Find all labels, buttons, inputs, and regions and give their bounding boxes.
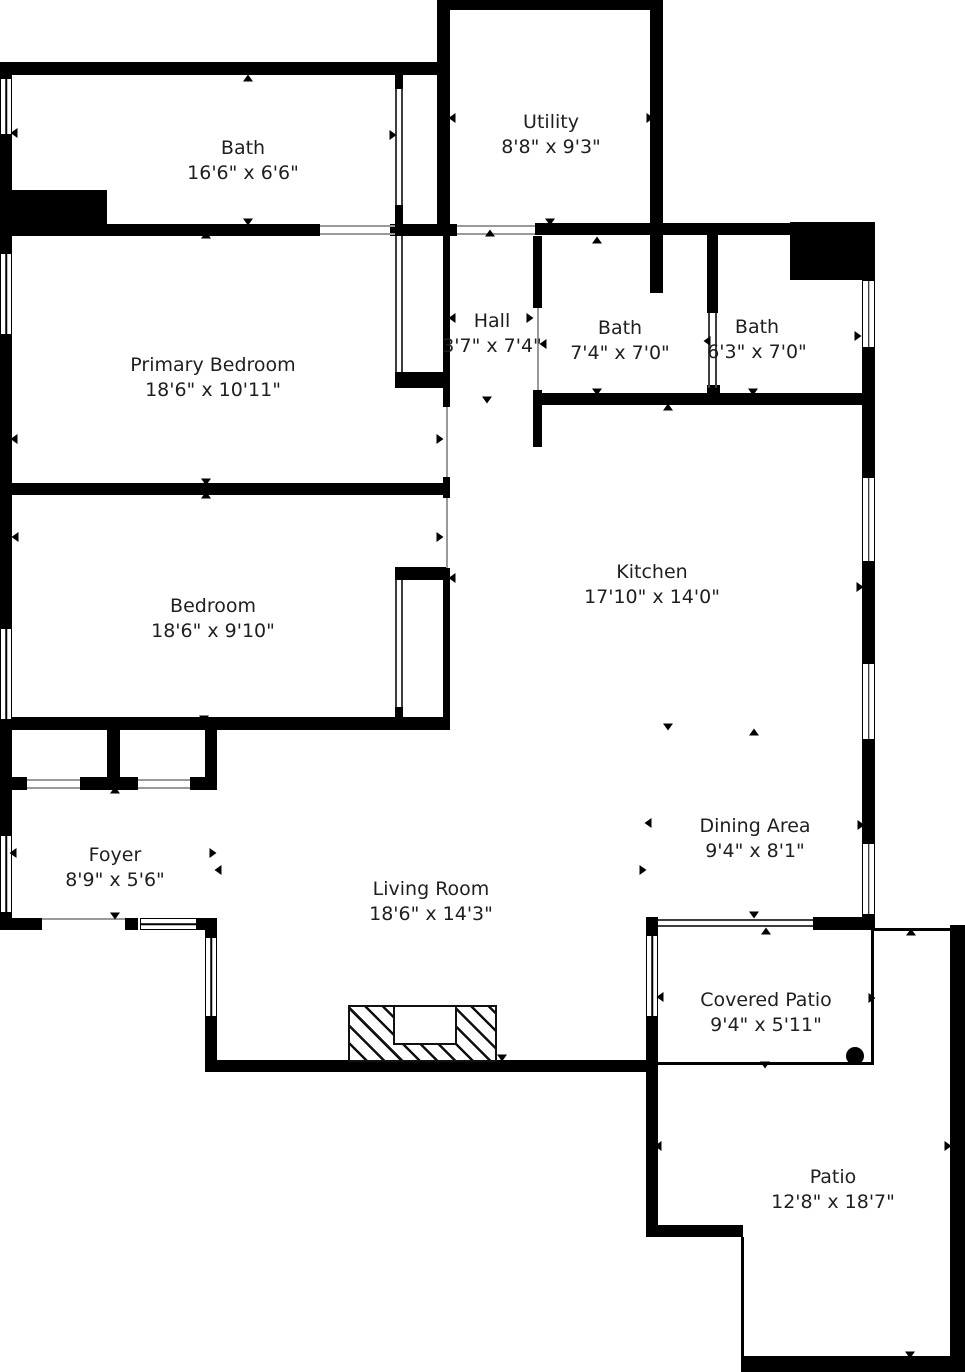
dimension-arrow-down <box>199 716 209 723</box>
dimension-arrow-up <box>545 3 555 10</box>
room-name: Bath <box>187 136 299 161</box>
window <box>0 253 12 335</box>
window-mullion <box>210 938 212 1016</box>
sliding-door-line <box>395 580 397 707</box>
dimension-arrow-up <box>201 232 211 239</box>
dimension-arrow-right <box>945 1141 952 1151</box>
door-opening-line <box>457 233 535 235</box>
room-label-patio: Patio12'8" x 18'7" <box>771 1165 895 1215</box>
room-dimensions: 7'4" x 7'0" <box>570 341 670 366</box>
wall-segment <box>0 717 450 730</box>
room-dimensions: 6'3" x 7'0" <box>707 340 807 365</box>
room-label-covered-patio: Covered Patio9'4" x 5'11" <box>700 988 832 1038</box>
sliding-door-line <box>395 236 397 372</box>
dimension-arrow-down <box>748 389 758 396</box>
dimension-arrow-down <box>749 912 759 919</box>
room-dimensions: 17'10" x 14'0" <box>584 585 720 610</box>
dimension-arrow-right <box>869 993 876 1003</box>
dimension-arrow-up <box>761 928 771 935</box>
room-label-kitchen: Kitchen17'10" x 14'0" <box>584 560 720 610</box>
room-dimensions: 18'6" x 10'11" <box>130 378 295 403</box>
dimension-arrow-down <box>545 219 555 226</box>
dimension-arrow-left <box>11 434 18 444</box>
door-opening-line <box>446 498 448 568</box>
fireplace-firebox <box>393 1005 457 1045</box>
room-name: Covered Patio <box>700 988 832 1013</box>
dimension-arrow-up <box>749 729 759 736</box>
room-label-bedroom: Bedroom18'6" x 9'10" <box>151 594 275 644</box>
room-label-bath: Bath16'6" x 6'6" <box>187 136 299 186</box>
dimension-arrow-right <box>858 820 865 830</box>
room-name: Hall <box>442 309 542 334</box>
dimension-arrow-down <box>760 1062 770 1069</box>
room-label-living-room: Living Room18'6" x 14'3" <box>369 877 493 927</box>
room-name: Primary Bedroom <box>130 353 295 378</box>
window-mullion <box>868 664 870 739</box>
wall-segment <box>950 925 965 1372</box>
room-name: Bath <box>570 316 670 341</box>
dimension-arrow-left <box>449 113 456 123</box>
wall-segment <box>707 235 718 313</box>
dimension-arrow-right <box>857 582 864 592</box>
dimension-arrow-up <box>663 404 673 411</box>
window-mullion <box>868 844 870 914</box>
window-mullion <box>868 281 870 347</box>
dimension-arrow-left <box>10 848 17 858</box>
dimension-arrow-down <box>497 1055 507 1062</box>
window <box>862 843 875 915</box>
dimension-arrow-down <box>110 913 120 920</box>
wall-segment <box>650 235 663 293</box>
wall-segment <box>443 568 450 730</box>
wall-segment <box>0 483 450 495</box>
door-opening-line <box>320 233 395 235</box>
dimension-arrow-up <box>201 492 211 499</box>
dimension-arrow-up <box>592 237 602 244</box>
dimension-arrow-right <box>390 130 397 140</box>
dimension-arrow-left <box>215 865 222 875</box>
dimension-arrow-down <box>905 1352 915 1359</box>
room-dimensions: 8'8" x 9'3" <box>501 135 601 160</box>
window <box>646 935 658 1017</box>
room-dimensions: 8'9" x 5'6" <box>65 868 165 893</box>
dimension-arrow-left <box>12 532 19 542</box>
window <box>0 835 12 913</box>
window-mullion <box>141 923 196 925</box>
dimension-arrow-left <box>657 992 664 1002</box>
sliding-door-line <box>401 236 403 372</box>
dimension-arrow-left <box>655 1141 662 1151</box>
wall-segment <box>395 567 448 580</box>
wall-segment <box>646 1225 743 1237</box>
wall-segment <box>80 777 138 790</box>
window <box>0 628 12 720</box>
window <box>862 477 875 562</box>
room-dimensions: 18'6" x 9'10" <box>151 619 275 644</box>
dimension-arrow-down <box>663 724 673 731</box>
room-label-hall: Hall3'7" x 7'4" <box>442 309 542 359</box>
dimension-arrow-right <box>855 331 862 341</box>
dimension-arrow-left <box>11 128 18 138</box>
door-opening-line <box>138 779 190 781</box>
room-dimensions: 12'8" x 18'7" <box>771 1190 895 1215</box>
wall-segment <box>533 393 873 405</box>
dimension-arrow-up <box>485 230 495 237</box>
dimension-arrow-down <box>592 389 602 396</box>
sliding-door-line <box>401 580 403 707</box>
sliding-door-line <box>658 919 813 921</box>
dimension-arrow-down <box>482 397 492 404</box>
door-opening-line <box>446 407 448 477</box>
window-mullion <box>651 936 653 1016</box>
window-mullion <box>5 629 7 719</box>
dimension-arrow-right <box>640 865 647 875</box>
dimension-arrow-right <box>210 848 217 858</box>
wall-segment <box>813 917 873 930</box>
sliding-door-line <box>395 89 397 205</box>
wall-segment <box>707 385 720 405</box>
room-label-primary-bedroom: Primary Bedroom18'6" x 10'11" <box>130 353 295 403</box>
wall-segment <box>646 1017 658 1237</box>
window-mullion <box>868 478 870 561</box>
window-mullion <box>5 79 7 134</box>
room-label-foyer: Foyer8'9" x 5'6" <box>65 843 165 893</box>
sliding-door-line <box>658 925 813 927</box>
wall-segment <box>0 224 320 236</box>
wall-segment <box>125 918 138 930</box>
dimension-arrow-down <box>201 479 211 486</box>
door-opening-line <box>320 225 395 227</box>
room-name: Foyer <box>65 843 165 868</box>
dimension-arrow-up <box>243 75 253 82</box>
dimension-arrow-left <box>645 818 652 828</box>
window <box>862 280 875 348</box>
room-dimensions: 18'6" x 14'3" <box>369 902 493 927</box>
wall-segment <box>741 1356 965 1372</box>
wall-segment <box>395 205 403 236</box>
room-name: Kitchen <box>584 560 720 585</box>
room-label-bath: Bath7'4" x 7'0" <box>570 316 670 366</box>
wall-segment <box>395 75 403 89</box>
room-name: Bath <box>707 315 807 340</box>
room-dimensions: 9'4" x 8'1" <box>699 839 810 864</box>
wall-segment <box>197 918 217 930</box>
room-label-utility: Utility8'8" x 9'3" <box>501 110 601 160</box>
floor-plan: Bath16'6" x 6'6"Utility8'8" x 9'3"Primar… <box>0 0 965 1372</box>
room-dimensions: 16'6" x 6'6" <box>187 161 299 186</box>
room-label-bath: Bath6'3" x 7'0" <box>707 315 807 365</box>
room-name: Patio <box>771 1165 895 1190</box>
window <box>0 78 12 135</box>
door-opening-line <box>457 225 535 227</box>
patio-post-dot <box>846 1047 864 1065</box>
window-mullion <box>5 254 7 334</box>
dimension-arrow-right <box>647 113 654 123</box>
window <box>862 663 875 740</box>
room-dimensions: 3'7" x 7'4" <box>442 334 542 359</box>
room-dimensions: 9'4" x 5'11" <box>700 1013 832 1038</box>
wall-segment <box>646 917 658 935</box>
room-name: Utility <box>501 110 601 135</box>
wall-segment <box>395 372 448 388</box>
room-name: Dining Area <box>699 814 810 839</box>
door-opening-line <box>27 787 80 789</box>
window <box>205 937 217 1017</box>
window-mullion <box>5 836 7 912</box>
dimension-arrow-right <box>437 532 444 542</box>
wall-segment <box>190 777 217 790</box>
window <box>140 918 197 930</box>
room-label-dining-area: Dining Area9'4" x 8'1" <box>699 814 810 864</box>
wall-segment <box>0 62 443 75</box>
wall-segment <box>0 918 42 930</box>
room-name: Bedroom <box>151 594 275 619</box>
wall-segment <box>533 236 542 308</box>
dimension-arrow-down <box>243 219 253 226</box>
sliding-door-line <box>401 89 403 205</box>
dimension-arrow-left <box>449 573 456 583</box>
door-opening-line <box>27 779 80 781</box>
door-opening-line <box>138 787 190 789</box>
dimension-arrow-up <box>110 787 120 794</box>
dimension-arrow-right <box>437 434 444 444</box>
patio-boundary-line <box>741 1237 744 1356</box>
room-name: Living Room <box>369 877 493 902</box>
dimension-arrow-up <box>906 929 916 936</box>
wall-segment <box>790 222 873 280</box>
wall-segment <box>12 777 27 790</box>
wall-segment <box>0 190 107 225</box>
